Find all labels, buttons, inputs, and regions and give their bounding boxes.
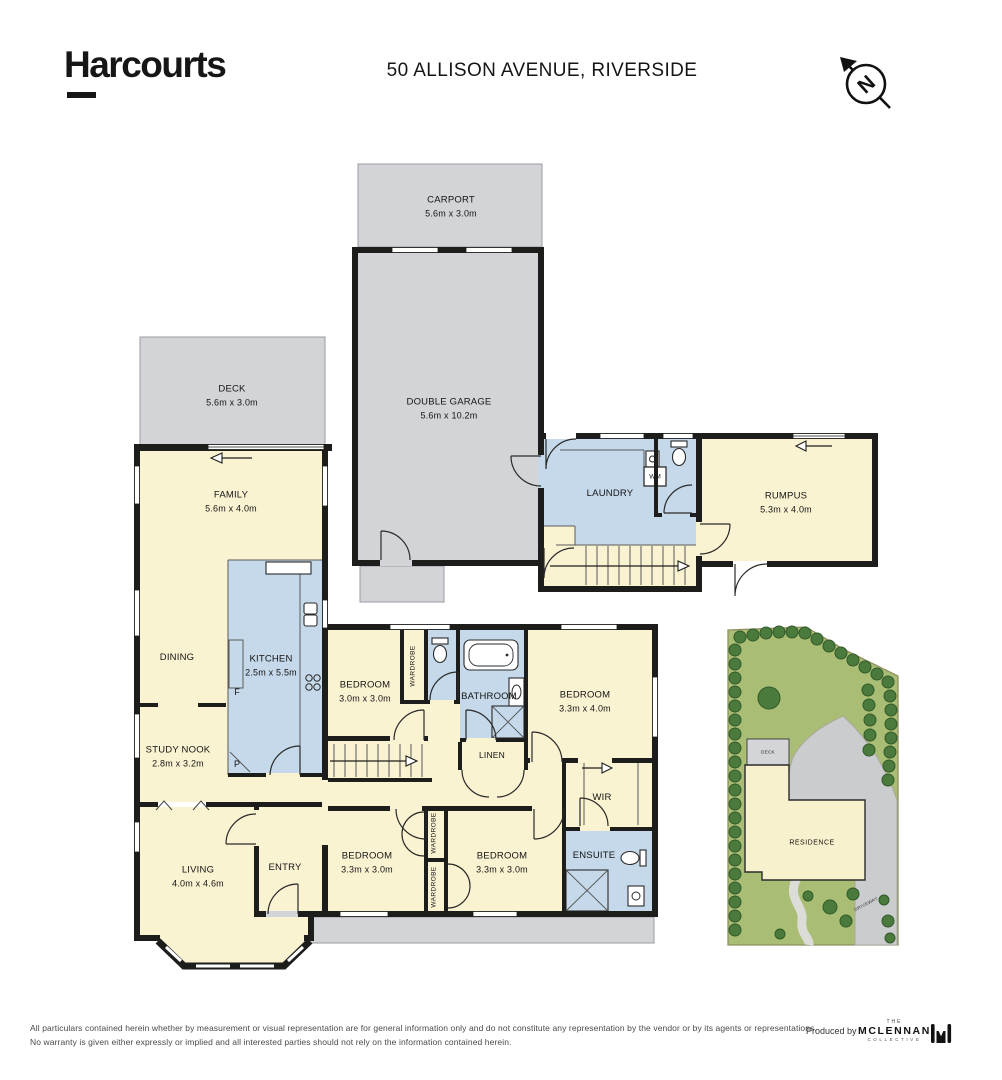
label-pantry: P [234,759,240,769]
room-label-ensuite: ENSUITE [573,849,616,863]
room-label-bedroom-3: BEDROOM3.3m x 3.0m [341,850,393,877]
disclaimer-line-1: All particulars contained herein whether… [30,1023,817,1033]
produced-by-text: Produced by [806,1026,857,1036]
room-label-study-nook: STUDY NOOK2.8m x 3.2m [146,744,211,771]
site-label-deck: DECK [761,750,775,755]
toilet-icon [671,441,687,466]
floorplan-page: Harcourts 50 ALLISON AVENUE, RIVERSIDE N [0,0,1002,1080]
mclennan-logo: THE MCLENNAN COLLECTIVE [858,1019,931,1042]
room-label-laundry: LAUNDRY [587,487,634,501]
room-label-bedroom-4: BEDROOM3.3m x 3.0m [476,850,528,877]
room-label-rumpus: RUMPUS5.3m x 4.0m [760,490,812,517]
room-label-wardrobe-3: WARDROBE [431,866,438,907]
room-label-bathroom: BATHROOM [461,690,517,704]
kitchen-sink-icon [304,603,317,626]
room-label-double-garage: DOUBLE GARAGE5.6m x 10.2m [407,396,492,423]
room-label-carport: CARPORT5.6m x 3.0m [425,194,477,221]
bathtub-icon [464,640,518,670]
room-label-deck: DECK5.6m x 3.0m [206,383,258,410]
room-label-entry: ENTRY [268,861,301,875]
mclennan-logo-main: MCLENNAN [858,1025,931,1037]
disclaimer-line-2: No warranty is given either expressly or… [30,1037,512,1047]
label-fridge: F [234,687,240,697]
room-label-wardrobe-1: WARDROBE [410,645,417,686]
label-wm: WM [649,474,661,481]
toilet-icon [621,850,646,866]
floorplan-drawing [0,0,1002,1080]
room-label-kitchen: KITCHEN2.5m x 5.5m [245,653,297,680]
room-label-living: LIVING4.0m x 4.6m [172,864,224,891]
room-label-dining: DINING [160,651,194,665]
room-label-wardrobe-2: WARDROBE [431,812,438,853]
room-label-wir: WIR [592,791,611,805]
site-label-residence: RESIDENCE [789,840,834,847]
room-label-linen: LINEN [479,749,505,761]
vanity-icon [628,886,644,906]
room-label-bedroom-1: BEDROOM3.0m x 3.0m [339,679,391,706]
mclennan-logo-mark-icon [930,1022,954,1046]
toilet-icon [432,638,448,663]
room-label-bedroom-2: BEDROOM3.3m x 4.0m [559,689,611,716]
room-label-family: FAMILY5.6m x 4.0m [205,489,257,516]
mclennan-logo-sub: COLLECTIVE [858,1037,931,1042]
